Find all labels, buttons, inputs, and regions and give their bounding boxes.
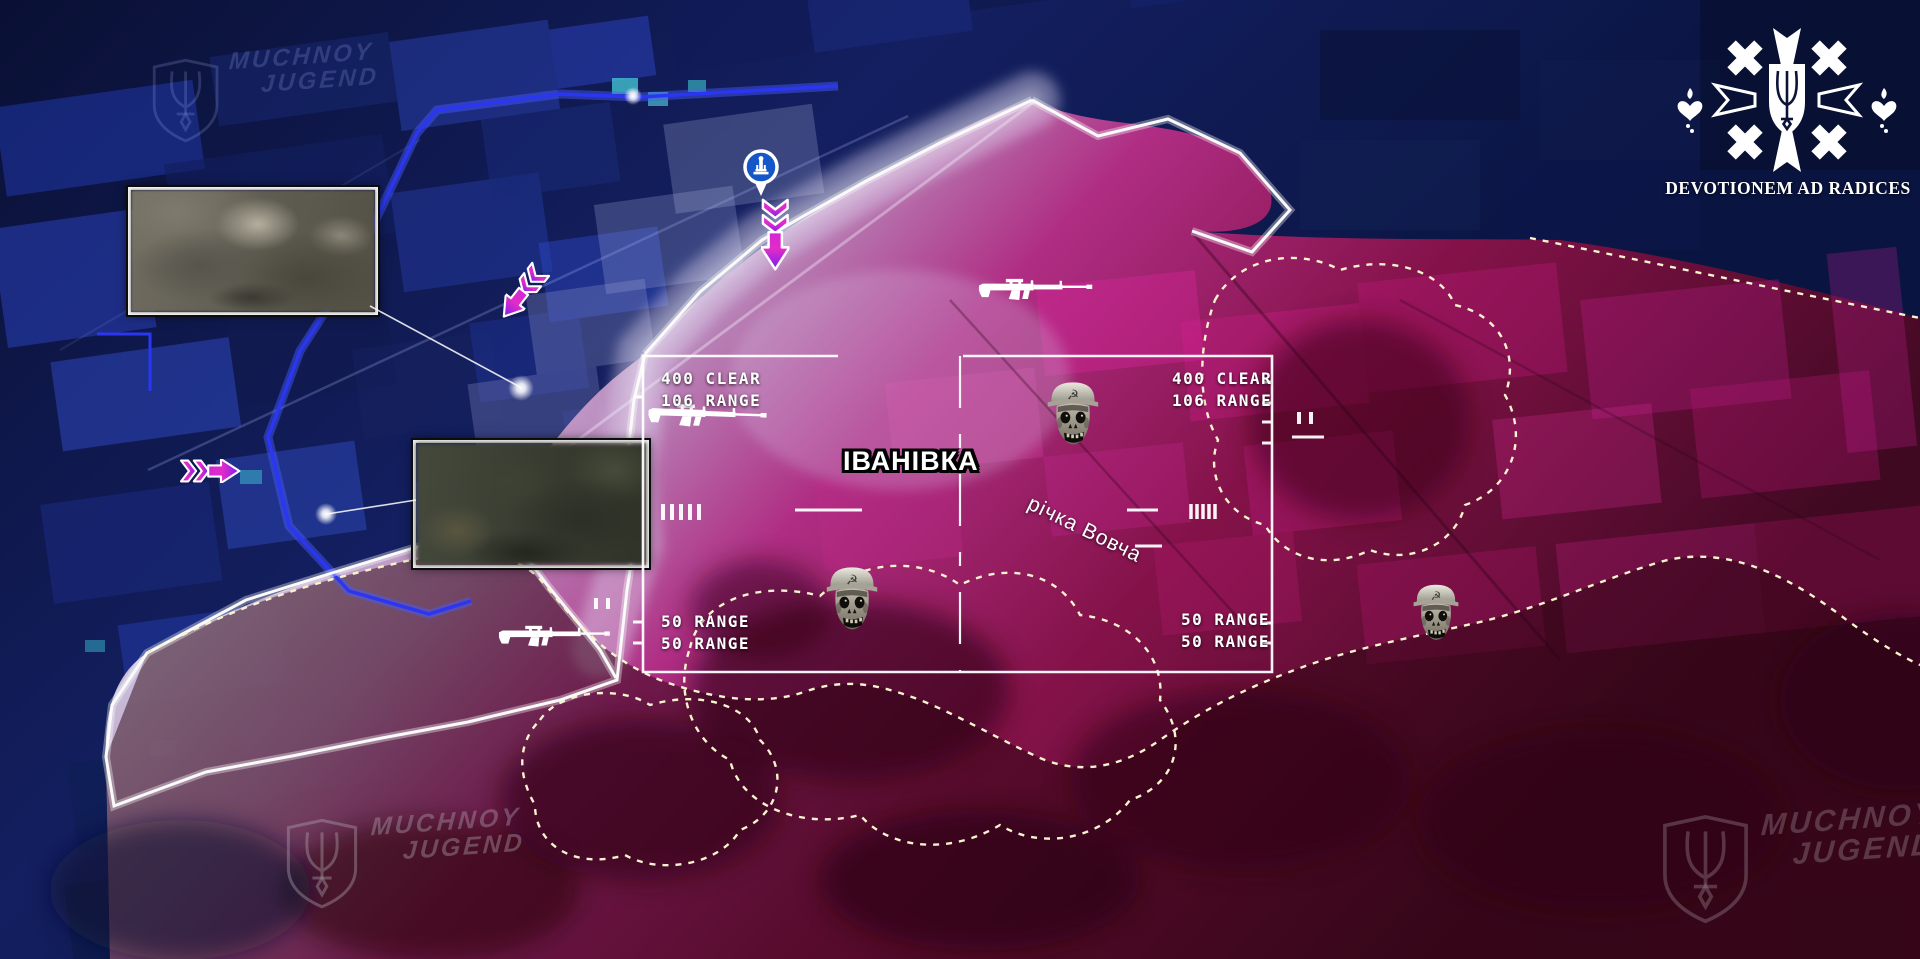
rifle-icon xyxy=(979,279,1092,300)
hud-readout-left-bottom: 50 RANGE 50 RANGE xyxy=(661,611,750,655)
hud-line: 400 CLEAR xyxy=(1172,368,1272,390)
hud-line: 50 RANGE xyxy=(661,611,750,633)
advance-arrow-icon xyxy=(494,262,550,324)
advance-arrow-icon xyxy=(761,200,790,269)
logo-motto: DEVOTIONEM AD RADICES xyxy=(1640,178,1920,199)
enemy-soldier-icon xyxy=(1414,585,1459,640)
hud-line: 106 RANGE xyxy=(661,390,761,412)
hud-readout-left-top: 400 CLEAR 106 RANGE xyxy=(661,368,761,412)
hud-line: 50 RANGE xyxy=(1181,609,1270,631)
target-glow-dot xyxy=(508,375,534,401)
hud-line: 106 RANGE xyxy=(1172,390,1272,412)
enemy-soldier-icon xyxy=(827,567,877,629)
hud-readout-right-top: 400 CLEAR 106 RANGE xyxy=(1172,368,1272,412)
inset-connectors xyxy=(315,87,642,525)
target-glow-dot xyxy=(315,503,337,525)
hud-tick-cluster-left xyxy=(663,504,699,520)
town-label: ІВАНІВКА xyxy=(843,446,979,477)
tactical-overlay: ☭ xyxy=(0,0,1920,959)
advance-arrow-icon xyxy=(181,459,239,483)
enemy-soldier-icon xyxy=(1048,382,1098,444)
settlement-glow-dot xyxy=(624,87,642,105)
hud-line: 50 RANGE xyxy=(661,633,750,655)
hud-line: 50 RANGE xyxy=(1181,631,1270,653)
rifle-icon xyxy=(499,626,610,647)
situation-map: ☭ xyxy=(0,0,1920,959)
hud-line: 400 CLEAR xyxy=(661,368,761,390)
hud-tick-cluster-right xyxy=(1191,504,1215,519)
monument-pin-icon xyxy=(745,151,777,196)
unit-logo: DEVOTIONEM AD RADICES xyxy=(1640,12,1920,199)
hud-readout-right-bottom: 50 RANGE 50 RANGE xyxy=(1181,609,1270,653)
